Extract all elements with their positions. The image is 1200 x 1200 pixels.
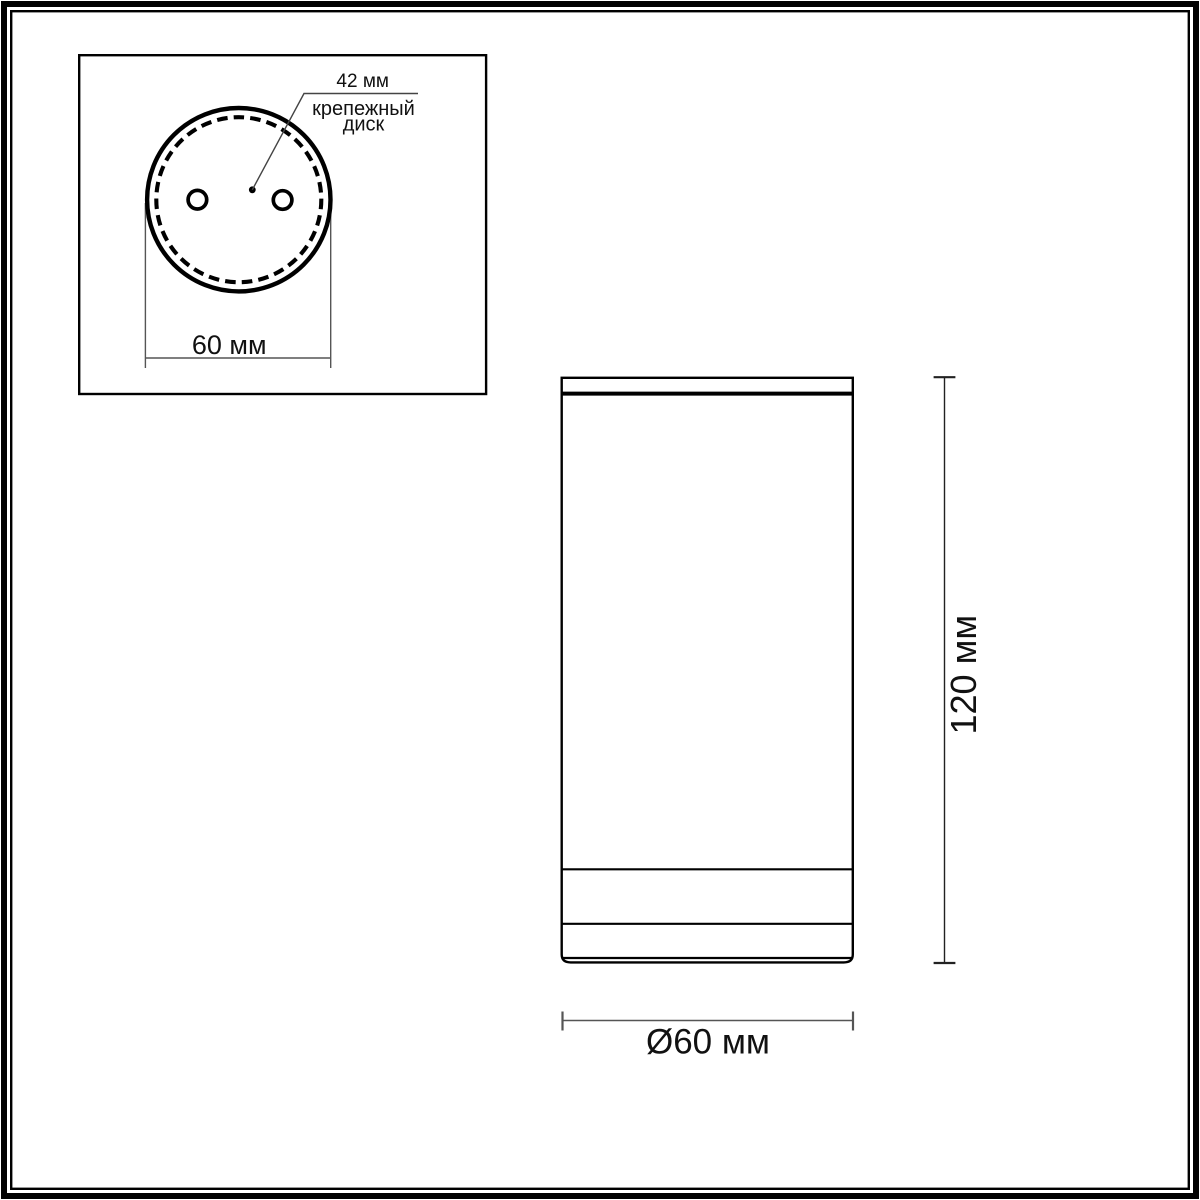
svg-text:диск: диск <box>343 113 385 135</box>
svg-text:60 мм: 60 мм <box>192 330 267 360</box>
svg-text:42 мм: 42 мм <box>336 71 389 92</box>
svg-text:120 мм: 120 мм <box>943 615 984 735</box>
svg-text:Ø60 мм: Ø60 мм <box>646 1023 770 1062</box>
